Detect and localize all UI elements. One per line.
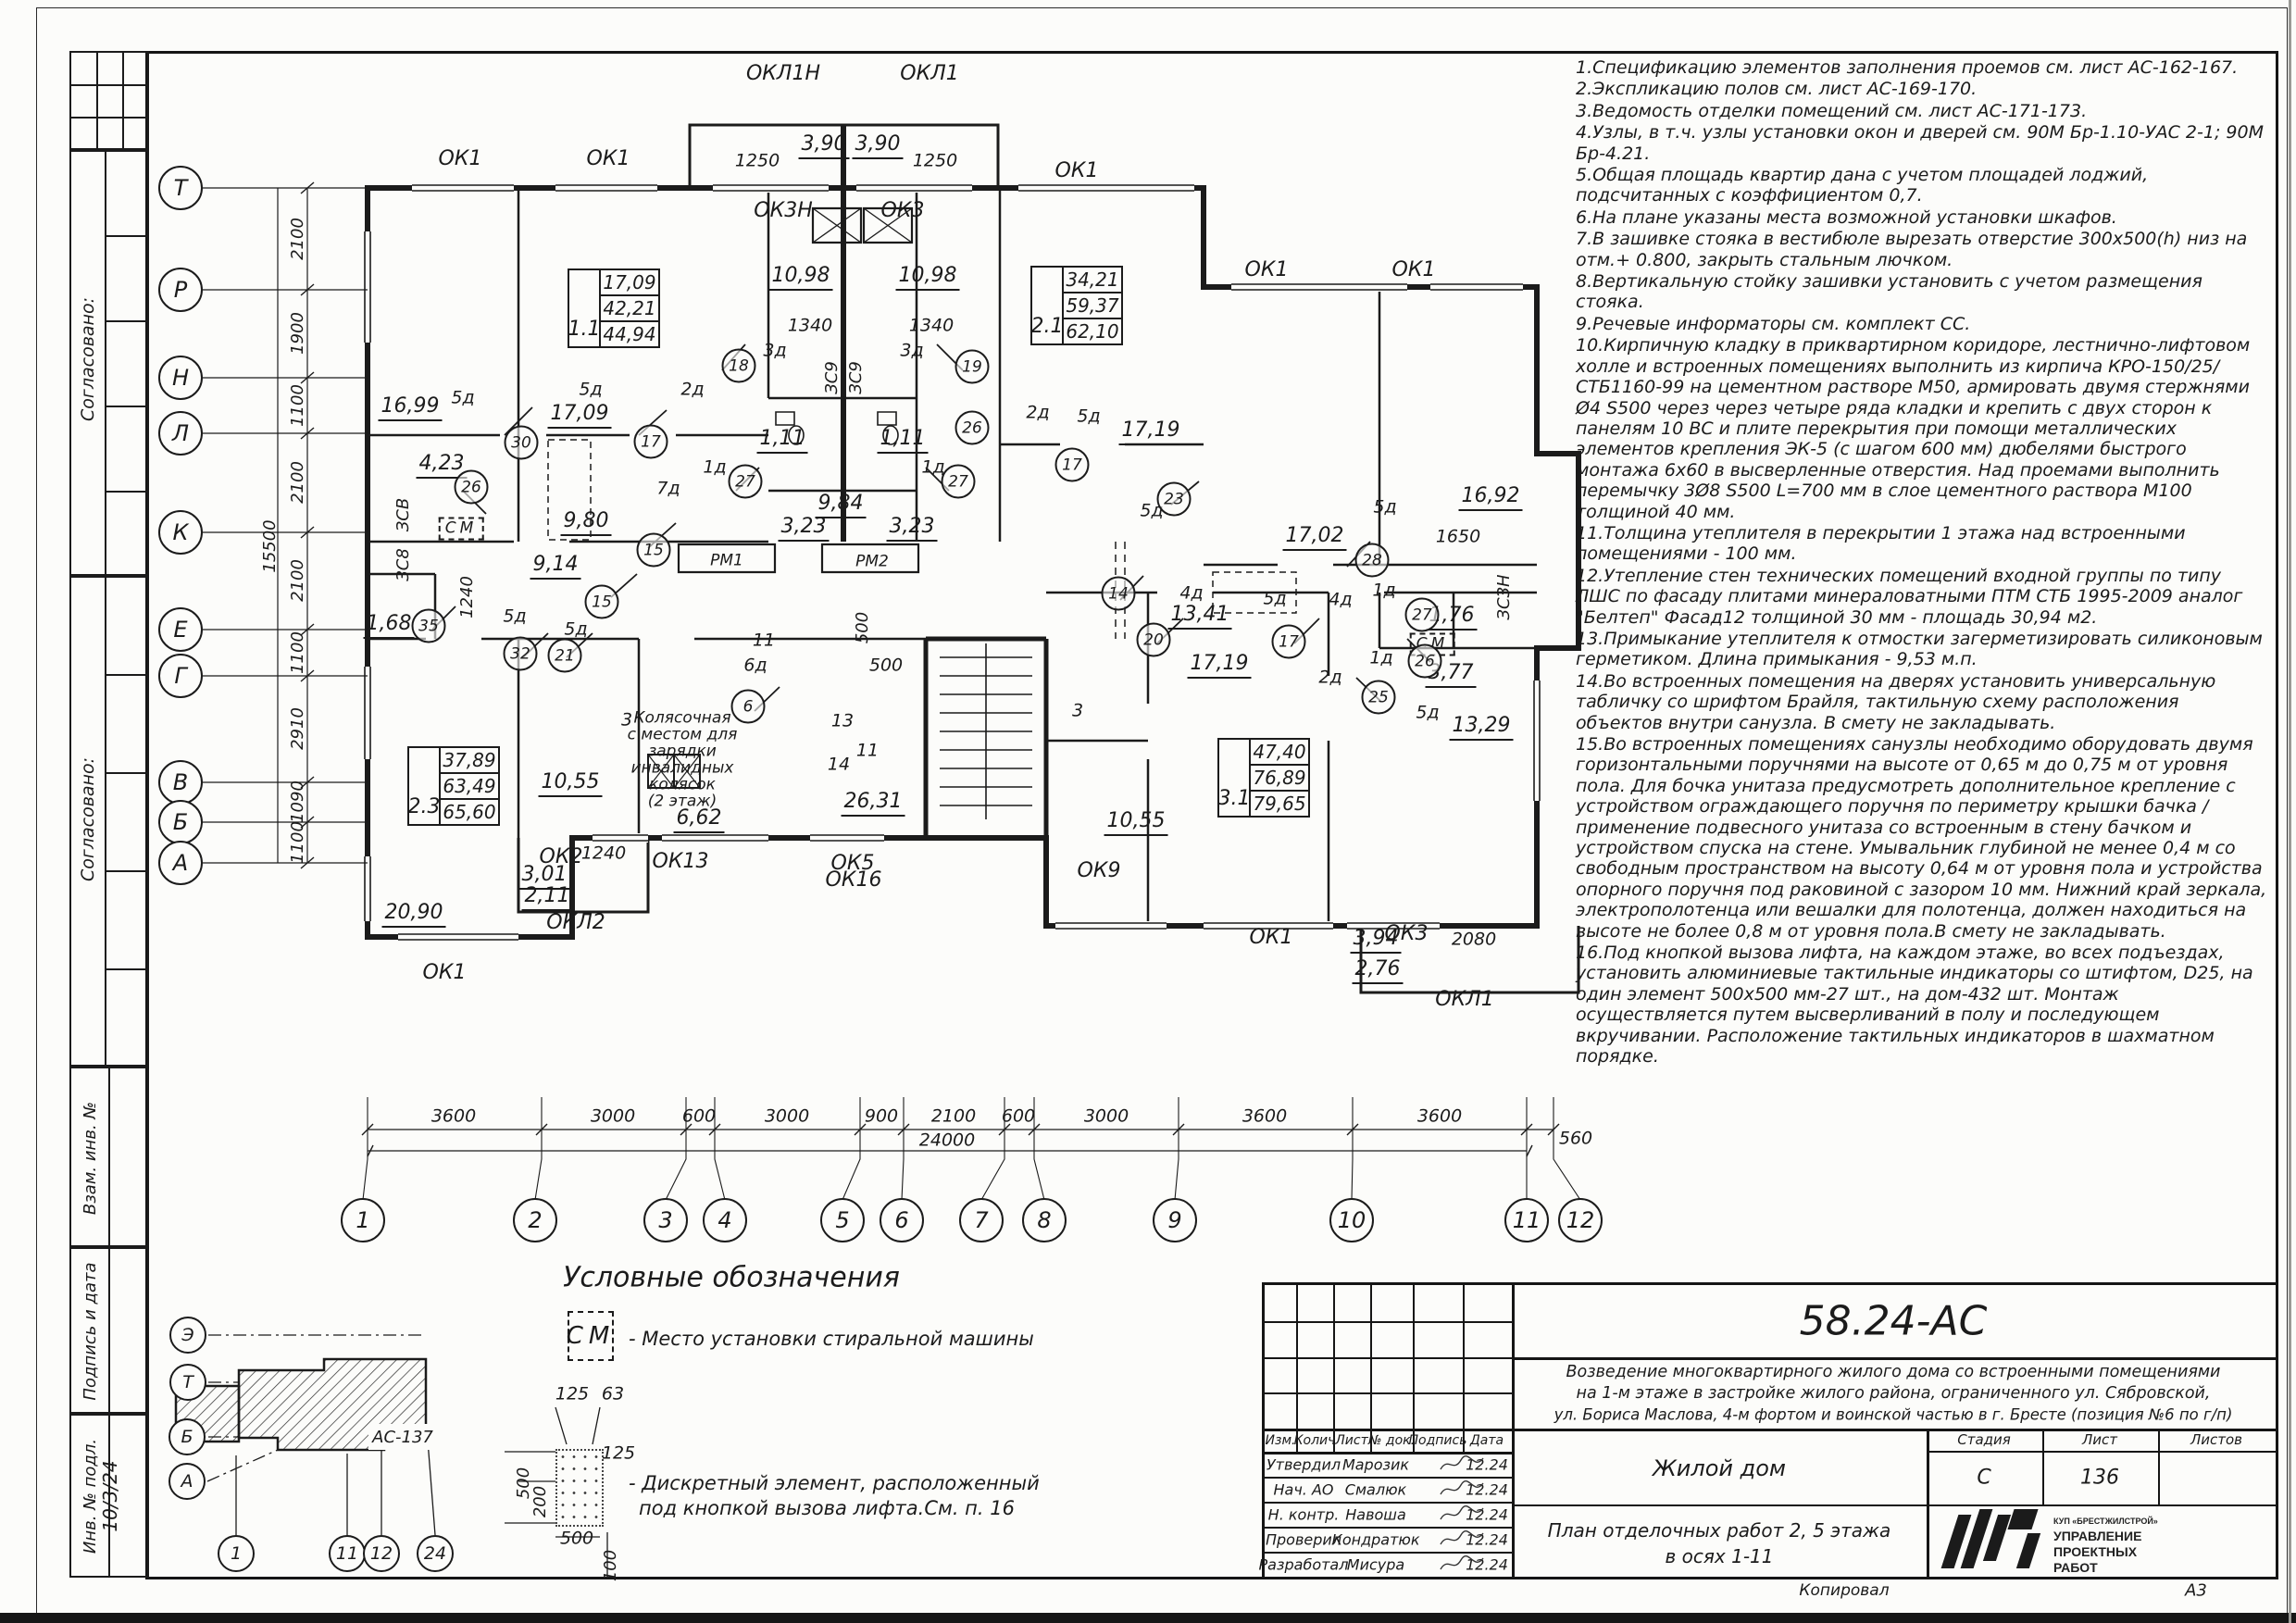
plan-label: 2,11	[522, 885, 573, 911]
door-tag: 28	[1355, 543, 1390, 578]
plan-label: 20,90	[382, 902, 446, 928]
plan-label: 9,80	[561, 510, 612, 536]
project-description-3: ул. Бориса Маслова, 4-м фортом и воинско…	[1554, 1406, 2233, 1424]
plan-label: 13,41	[1168, 604, 1232, 630]
wall-line	[813, 208, 861, 243]
sheet-title-line-1: План отделочных работ 2, 5 этажа	[1548, 1519, 1891, 1542]
plan-label: ЗСВ	[395, 498, 412, 531]
vzam-inv-label: Взам. инв. №	[72, 1084, 107, 1232]
plan-label: 1250	[735, 153, 780, 170]
axis-dimension: 3600	[1417, 1108, 1462, 1126]
approval-role: Разработал	[1259, 1556, 1349, 1574]
apartment-area-value: 17,09	[601, 270, 658, 296]
axis-marker-column: 3	[643, 1198, 688, 1242]
discrete-element-text-1: - Дискретный элемент, расположенный	[629, 1472, 1040, 1494]
door-tag: 17	[1055, 448, 1090, 482]
axis-marker-row: Б	[158, 800, 203, 844]
inv-podl-cell: Инв. № подл. 10/3/24	[69, 1412, 149, 1578]
door-tag: 19	[955, 350, 990, 384]
podpis-data-cell: Подпись и дата	[69, 1245, 149, 1416]
axis-dimension: 2100	[290, 218, 306, 260]
door-tag: 26	[955, 411, 990, 445]
axis-marker-column: 9	[1153, 1198, 1197, 1242]
note-line: 1.Спецификацию элементов заполнения прое…	[1576, 57, 2268, 78]
title-block: Изм. Колич Лист № док. Подпись Дата Утве…	[1262, 1282, 2278, 1579]
apartment-number: 1.1	[569, 270, 601, 346]
axis-marker-row: В	[158, 760, 203, 805]
axis-dimension: 2100	[290, 559, 306, 602]
plan-label: ОК1	[1250, 928, 1293, 948]
plan-label: ОК1	[423, 963, 467, 983]
scan-artifact-bottom	[0, 1613, 2296, 1623]
axis-marker-column: 1	[341, 1198, 385, 1242]
soglasovano-label: Согласовано:	[71, 276, 105, 443]
signature	[1439, 1554, 1485, 1575]
plan-label: 3	[1072, 703, 1083, 720]
plan-label: СМ	[439, 518, 484, 541]
listov-label: Листов	[2190, 1431, 2242, 1448]
note-line: 11.Толщина утеплителя в перекрытии 1 эта…	[1576, 523, 2268, 565]
door-tag: 26	[1408, 644, 1442, 679]
list-value: 136	[2080, 1467, 2119, 1490]
door-tag: 18	[722, 349, 756, 383]
axis-marker-row: Л	[158, 411, 203, 456]
axis-marker-column: 7	[959, 1198, 1004, 1242]
approval-name: Навоша	[1345, 1506, 1406, 1524]
drawing-sheet: Согласовано: Согласовано: Взам. инв. № П…	[0, 0, 2296, 1623]
approval-role: Проверил	[1266, 1531, 1341, 1549]
axis-marker-row: Н	[158, 356, 203, 400]
apartment-number: 3.1	[1219, 740, 1251, 816]
approval-name: Кондратюк	[1331, 1531, 1419, 1549]
wall-line	[1034, 1130, 1044, 1200]
plan-label: 17,19	[1119, 419, 1183, 445]
plan-label: 5д	[1077, 408, 1100, 426]
plan-label: 6,62	[674, 807, 725, 833]
logo-company-name: КУП «БРЕСТЖИЛСТРОЙ»	[2053, 1517, 2158, 1526]
apartment-area-value: 76,89	[1251, 766, 1308, 792]
note-line: 15.Во встроенных помещениях санузлы необ…	[1576, 734, 2268, 942]
plan-label: 1650	[1436, 529, 1480, 546]
plan-label: 5д	[1416, 705, 1439, 722]
axis-dimension: 1100	[290, 384, 306, 427]
approval-name: Марозик	[1342, 1456, 1409, 1474]
signature	[1439, 1529, 1485, 1550]
plan-label: ОКЛ1Н	[746, 64, 820, 84]
plan-label: ОК1	[1392, 260, 1436, 281]
axis-dimension: 3600	[431, 1108, 476, 1126]
plan-label: 1д	[1369, 650, 1392, 668]
plan-label: 11	[753, 632, 775, 650]
keyplan-axis-marker: 24	[417, 1535, 454, 1572]
plan-label: 1240	[459, 576, 476, 618]
axis-dimension: 1100	[290, 631, 306, 674]
plan-label: 13	[831, 713, 854, 730]
apartment-area-value: 62,10	[1064, 319, 1121, 343]
plan-label: ОК1	[439, 149, 482, 169]
podpis-data-label: Подпись и дата	[72, 1257, 107, 1405]
plan-label: зарядки	[648, 744, 717, 760]
washing-machine-legend-text: - Место установки стиральной машины	[629, 1328, 1034, 1350]
inv-number-value: 10/3/24	[93, 1441, 128, 1552]
plan-label: 13,29	[1450, 715, 1514, 741]
plan-label: 16,92	[1459, 485, 1523, 511]
axis-marker-column: 12	[1558, 1198, 1603, 1242]
plan-label: 3,90	[853, 133, 904, 159]
axis-dimension: 600	[1002, 1108, 1035, 1126]
plan-label: 16,99	[379, 395, 443, 421]
col-izm: Изм.	[1266, 1433, 1296, 1448]
door-tag: 25	[1362, 680, 1396, 715]
keyplan-section-label: АС-137	[368, 1424, 437, 1450]
plan-label: 3,23	[779, 516, 830, 542]
col-kolich: Колич	[1294, 1433, 1336, 1448]
stadiya-value: С	[1977, 1467, 1990, 1490]
plan-label: 9,84	[816, 493, 867, 518]
kopiroval-label: Копировал	[1799, 1581, 1889, 1600]
keyplan-axis-marker: Б	[168, 1418, 206, 1455]
vzam-inv-cell: Взам. инв. №	[69, 1065, 149, 1249]
apartment-area-table: 1.117,0942,2144,94	[568, 268, 660, 348]
plan-label: 4д	[1179, 585, 1203, 603]
approval-name: Смалюк	[1345, 1481, 1406, 1499]
plan-label: ОК16	[826, 870, 882, 891]
wall-line	[278, 188, 307, 863]
plan-label: ОКЛ1	[1435, 990, 1493, 1010]
plan-label: 100	[603, 1550, 619, 1581]
project-description-1: Возведение многоквартирного жилого дома …	[1566, 1363, 2221, 1381]
soglasovano-block-1: Согласовано:	[69, 148, 149, 578]
axis-marker-column: 6	[880, 1198, 924, 1242]
approval-role: Н. контр.	[1268, 1506, 1340, 1524]
door-tag: 30	[505, 426, 539, 460]
apartment-area-value: 34,21	[1064, 268, 1121, 293]
axis-dimension: 900	[865, 1108, 898, 1126]
door-tag: 6	[731, 690, 766, 724]
wall-line	[776, 412, 896, 425]
object-name: Жилой дом	[1653, 1455, 1786, 1481]
plan-label: ОКЛ2	[546, 913, 605, 933]
logo-line-1: УПРАВЛЕНИЕ	[2053, 1529, 2141, 1543]
door-tag: 27	[942, 465, 976, 499]
wall-line	[842, 1130, 860, 1200]
note-line: 7.В зашивке стояка в вестибюле вырезать …	[1576, 229, 2268, 270]
plan-label: 17,02	[1283, 525, 1347, 551]
plan-label: колясок	[649, 778, 716, 793]
plan-label: 2080	[1452, 931, 1496, 949]
plan-label: 1250	[913, 153, 957, 170]
door-tag: 14	[1102, 577, 1136, 611]
plan-label: 9,14	[530, 554, 581, 580]
general-notes: 1.Спецификацию элементов заполнения прое…	[1576, 57, 2268, 1068]
plan-label: 4д	[1329, 592, 1352, 609]
apartment-area-value: 59,37	[1064, 293, 1121, 319]
approval-role: Нач. АО	[1274, 1481, 1334, 1499]
col-list: Лист	[1335, 1433, 1367, 1448]
plan-label: 1,68	[364, 613, 415, 639]
plan-label: 2,76	[1353, 958, 1404, 984]
axis-dimension: 2100	[290, 461, 306, 504]
wall-line	[363, 1130, 368, 1200]
apartment-area-value: 37,89	[441, 748, 498, 774]
door-tag: 17	[634, 425, 668, 459]
note-line: 5.Общая площадь квартир дана с учетом пл…	[1576, 165, 2268, 206]
plan-label: 3	[621, 712, 632, 730]
keyplan-axis-marker: Т	[169, 1364, 206, 1401]
door-tag: 27	[729, 465, 763, 499]
soglasovano-block-2: Согласовано:	[69, 574, 149, 1068]
keyplan-axis-marker: 11	[329, 1535, 366, 1572]
wall-line	[1352, 1130, 1353, 1200]
door-tag: 27	[1405, 598, 1440, 632]
axis-marker-column: 10	[1329, 1198, 1374, 1242]
plan-label: 2д	[1318, 669, 1341, 687]
axis-dimension: 3000	[765, 1108, 809, 1126]
door-tag: 26	[455, 470, 489, 505]
axis-dimension: 3000	[591, 1108, 635, 1126]
washing-machine-symbol: СМ	[568, 1311, 614, 1361]
plan-label: 200	[532, 1486, 549, 1517]
apartment-area-table: 2.337,8963,4965,60	[407, 746, 500, 826]
wall-line	[981, 1130, 1004, 1200]
plan-label: ОК9	[1078, 861, 1121, 881]
plan-label: 17,19	[1188, 653, 1252, 679]
door-tag: 21	[548, 639, 582, 673]
logo-line-3: РАБОТ	[2053, 1560, 2098, 1575]
plan-label: 3,90	[799, 133, 850, 159]
axis-marker-row: К	[158, 510, 203, 555]
axis-dimension: 560	[1559, 1130, 1592, 1148]
plan-label: 7д	[656, 481, 680, 498]
plan-label: 5д	[564, 621, 587, 639]
axis-dimension: 1090	[290, 780, 306, 823]
plan-label: 125	[602, 1445, 635, 1463]
plan-label: 5д	[1263, 591, 1286, 608]
keyplan-axis-marker: А	[168, 1463, 206, 1500]
plan-label: 10,98	[769, 265, 833, 291]
plan-label: ОК13	[653, 852, 709, 872]
approval-role: Утвердил	[1267, 1456, 1341, 1474]
apartment-number: 2.1	[1032, 268, 1064, 343]
axis-dimension: 1900	[290, 312, 306, 355]
apartment-area-value: 63,49	[441, 774, 498, 800]
plan-label: 2д	[1026, 405, 1049, 422]
plan-label: ЗС8	[395, 548, 412, 581]
sheet-title-line-2: в осях 1-11	[1666, 1545, 1774, 1567]
plan-label: 10,98	[896, 265, 960, 291]
plan-label: 10,55	[539, 771, 603, 797]
signature	[1439, 1454, 1485, 1475]
plan-label: 5д	[503, 608, 526, 626]
axis-marker-column: 5	[820, 1198, 865, 1242]
plan-label: 17,09	[548, 403, 612, 429]
plan-label: ЗС9	[824, 361, 841, 394]
plan-label: 26,31	[842, 791, 905, 817]
apartment-area-value: 44,94	[601, 322, 658, 346]
note-line: 14.Во встроенных помещения на дверях уст…	[1576, 671, 2268, 733]
plan-label: ОКЛ1	[900, 64, 958, 84]
note-line: 16.Под кнопкой вызова лифта, на каждом э…	[1576, 943, 2268, 1067]
axis-marker-column: 4	[703, 1198, 747, 1242]
axis-marker-row: Т	[158, 166, 203, 210]
keyplan-axis-marker: Э	[169, 1317, 206, 1354]
logo-line-2: ПРОЕКТНЫХ	[2053, 1544, 2137, 1559]
soglasovano-label: Согласовано:	[71, 736, 105, 903]
legend-title: Условные обозначения	[563, 1262, 900, 1294]
plan-label: 1,11	[878, 428, 929, 454]
plan-label: 1д	[921, 459, 944, 477]
axis-marker-row: А	[158, 841, 203, 885]
note-line: 8.Вертикальную стойку зашивки установить…	[1576, 271, 2268, 313]
plan-label: 500	[855, 612, 871, 643]
door-tag: 32	[504, 637, 538, 671]
plan-label: 3,23	[887, 516, 938, 542]
plan-label: 10,55	[1104, 810, 1168, 836]
plan-label: 5д	[1373, 499, 1396, 517]
col-podpis: Подпись	[1409, 1433, 1467, 1448]
plan-label: ОК1	[1055, 161, 1099, 181]
axis-dimension: 600	[682, 1108, 716, 1126]
plan-label: 3д	[763, 343, 786, 360]
axis-dimension-total: 24000	[919, 1132, 975, 1150]
axis-marker-column: 2	[513, 1198, 557, 1242]
apartment-area-value: 79,65	[1251, 792, 1308, 816]
approval-name: Мисура	[1347, 1556, 1404, 1574]
plan-label: 11	[856, 743, 879, 760]
plan-label: 1д	[703, 459, 726, 477]
note-line: 9.Речевые информаторы см. комплект СС.	[1576, 314, 2268, 334]
plan-label: РМ1	[710, 554, 743, 569]
plan-label: ОК3Н	[754, 201, 812, 221]
plan-label: 1340	[909, 318, 954, 335]
axis-dimension: 2100	[931, 1108, 976, 1126]
note-line: 2.Экспликацию полов см. лист АС-169-170.	[1576, 79, 2268, 99]
apartment-area-value: 65,60	[441, 800, 498, 824]
door-tag: 35	[412, 609, 446, 643]
discrete-element-symbol	[555, 1449, 604, 1527]
plan-label: 500	[560, 1530, 593, 1548]
format-label: А3	[2185, 1581, 2207, 1601]
apartment-area-value: 42,21	[601, 296, 658, 322]
wall-line	[715, 1130, 725, 1200]
document-number: 58.24-АС	[1800, 1298, 1988, 1345]
plan-label: 5д	[579, 381, 602, 399]
axis-dimension-total: 15500	[262, 519, 279, 572]
note-line: 3.Ведомость отделки помещений см. лист А…	[1576, 101, 2268, 121]
plan-label: ЗС9	[848, 361, 865, 394]
keyplan-axis-marker: 1	[218, 1535, 255, 1572]
note-line: 4.Узлы, в т.ч. узлы установки окон и две…	[1576, 122, 2268, 164]
plan-label: ОК3	[1385, 924, 1429, 944]
note-line: 13.Примыкание утеплителя к отмостки заге…	[1576, 629, 2268, 670]
plan-label: с местом для	[628, 728, 738, 743]
axis-marker-column: 8	[1022, 1198, 1067, 1242]
apartment-area-value: 47,40	[1251, 740, 1308, 766]
plan-label: 6д	[743, 657, 767, 675]
plan-label: ЗСЗН	[1496, 574, 1513, 619]
wall-line	[666, 1130, 686, 1200]
keyplan-axis-marker: 12	[363, 1535, 400, 1572]
discrete-element-text-2: под кнопкой вызова лифта.См. п. 16	[639, 1497, 1015, 1519]
wall-line	[902, 1130, 904, 1200]
axis-dimension: 2910	[290, 707, 306, 750]
plan-label: инвалидных	[631, 761, 734, 777]
plan-label: 125	[555, 1386, 589, 1404]
axis-dimension: 3000	[1084, 1108, 1129, 1126]
axis-marker-row: Е	[158, 607, 203, 652]
scan-artifact-right	[2289, 0, 2291, 1623]
axis-marker-row: Р	[158, 268, 203, 312]
col-data: Дата	[1470, 1433, 1504, 1448]
plan-label: 1340	[788, 318, 832, 335]
door-tag: 20	[1137, 623, 1171, 657]
plan-label: 3д	[900, 343, 923, 360]
plan-label: 500	[869, 657, 903, 675]
plan-label: 5д	[451, 390, 474, 407]
door-tag: 23	[1157, 482, 1192, 517]
plan-label: 63	[602, 1386, 624, 1404]
stamp-grid	[69, 51, 149, 152]
note-line: 10.Кирпичную кладку в приквартирном кори…	[1576, 335, 2268, 522]
plan-label: ОК3	[881, 201, 925, 221]
plan-label: 2д	[680, 381, 704, 399]
plan-label: 14	[828, 756, 850, 774]
plan-label: РМ2	[855, 555, 889, 570]
axis-dimension: 3600	[1242, 1108, 1287, 1126]
apartment-area-table: 3.147,4076,8979,65	[1217, 738, 1310, 818]
plan-label: 1,11	[757, 428, 808, 454]
plan-label: 1д	[1372, 582, 1395, 600]
door-tag: 15	[637, 533, 671, 568]
plan-label: ОК1	[587, 149, 630, 169]
plan-label: Колясочная	[633, 711, 730, 727]
plan-label: 1240	[581, 845, 626, 863]
axis-marker-column: 11	[1504, 1198, 1549, 1242]
note-line: 6.На плане указаны места возможной устан…	[1576, 207, 2268, 228]
door-tag: 17	[1272, 625, 1306, 659]
wall-line	[1175, 1130, 1179, 1200]
stadiya-label: Стадия	[1957, 1431, 2011, 1448]
signature	[1439, 1504, 1485, 1525]
apartment-area-table: 2.134,2159,3762,10	[1030, 266, 1123, 345]
note-line: 12.Утепление стен технических помещений …	[1576, 566, 2268, 628]
apartment-number: 2.3	[409, 748, 441, 824]
door-tag: 15	[585, 585, 619, 619]
list-label: Лист	[2082, 1431, 2117, 1448]
axis-dimension: 1100	[290, 821, 306, 864]
signature	[1439, 1479, 1485, 1500]
axis-marker-row: Г	[158, 654, 203, 698]
wall-line	[535, 1130, 542, 1200]
project-description-2: на 1-м этаже в застройке жилого района, …	[1577, 1384, 2211, 1403]
plan-label: ОК1	[1245, 260, 1289, 281]
